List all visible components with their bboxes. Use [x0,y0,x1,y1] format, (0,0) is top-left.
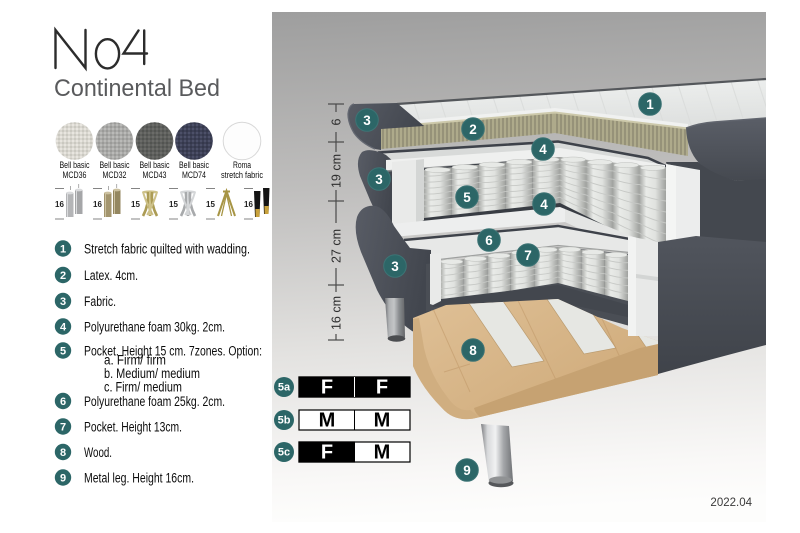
svg-text:Bell basic: Bell basic [140,160,170,170]
svg-text:Latex. 4cm.: Latex. 4cm. [84,268,138,283]
svg-text:3: 3 [363,113,371,128]
svg-text:9: 9 [60,472,66,484]
svg-text:16: 16 [244,200,253,209]
svg-text:15: 15 [131,200,140,209]
svg-text:19 cm: 19 cm [329,154,343,188]
svg-text:7: 7 [524,248,532,263]
svg-text:F: F [321,442,333,464]
svg-text:Roma: Roma [233,160,251,170]
svg-text:3: 3 [60,296,66,308]
svg-text:Polyurethane foam 25kg. 2cm.: Polyurethane foam 25kg. 2cm. [84,394,225,409]
svg-text:15: 15 [169,200,178,209]
svg-text:F: F [376,377,388,399]
svg-text:4: 4 [60,321,67,333]
svg-text:MCD36: MCD36 [63,170,87,180]
svg-text:Bell basic: Bell basic [100,160,130,170]
svg-text:5: 5 [60,345,66,357]
svg-text:Bell basic: Bell basic [179,160,209,170]
svg-text:F: F [321,377,333,399]
svg-text:15: 15 [206,200,215,209]
svg-text:16: 16 [93,200,102,209]
svg-text:8: 8 [469,343,477,358]
svg-text:6: 6 [485,233,493,248]
svg-text:2022.04: 2022.04 [710,497,752,509]
svg-text:2: 2 [469,122,477,137]
svg-text:M: M [374,442,391,464]
svg-text:6: 6 [329,118,343,125]
svg-text:Fabric.: Fabric. [84,294,116,309]
svg-text:Stretch fabric quilted with wa: Stretch fabric quilted with wadding. [84,241,250,256]
svg-text:MCD74: MCD74 [182,170,206,180]
svg-text:7: 7 [60,421,66,433]
svg-text:16: 16 [55,200,64,209]
svg-text:8: 8 [60,447,66,459]
svg-text:c. Firm/ medium: c. Firm/ medium [104,380,182,395]
svg-text:5b: 5b [278,415,291,427]
svg-text:Continental Bed: Continental Bed [54,75,220,102]
svg-text:Pocket. Height 13cm.: Pocket. Height 13cm. [84,419,182,434]
svg-text:3: 3 [391,259,399,274]
svg-text:1: 1 [60,243,66,255]
svg-text:1: 1 [646,97,654,112]
svg-text:Wood.: Wood. [84,445,112,460]
svg-text:stretch fabric: stretch fabric [221,170,263,180]
svg-text:3: 3 [375,172,383,187]
svg-text:9: 9 [463,463,471,478]
svg-text:Metal leg. Height 16cm.: Metal leg. Height 16cm. [84,470,194,485]
svg-text:4: 4 [539,142,547,157]
svg-text:MCD32: MCD32 [103,170,127,180]
svg-text:5a: 5a [278,382,291,394]
svg-text:4: 4 [540,197,548,212]
svg-text:M: M [374,410,391,432]
svg-text:Bell basic: Bell basic [60,160,90,170]
svg-text:5c: 5c [278,447,290,459]
svg-text:6: 6 [60,396,66,408]
svg-text:5: 5 [463,190,471,205]
svg-text:16 cm: 16 cm [329,296,343,330]
svg-text:2: 2 [60,270,66,282]
svg-text:M: M [319,410,336,432]
svg-text:MCD43: MCD43 [143,170,167,180]
svg-text:27 cm: 27 cm [329,229,343,263]
svg-text:Polyurethane foam 30kg. 2cm.: Polyurethane foam 30kg. 2cm. [84,319,225,334]
